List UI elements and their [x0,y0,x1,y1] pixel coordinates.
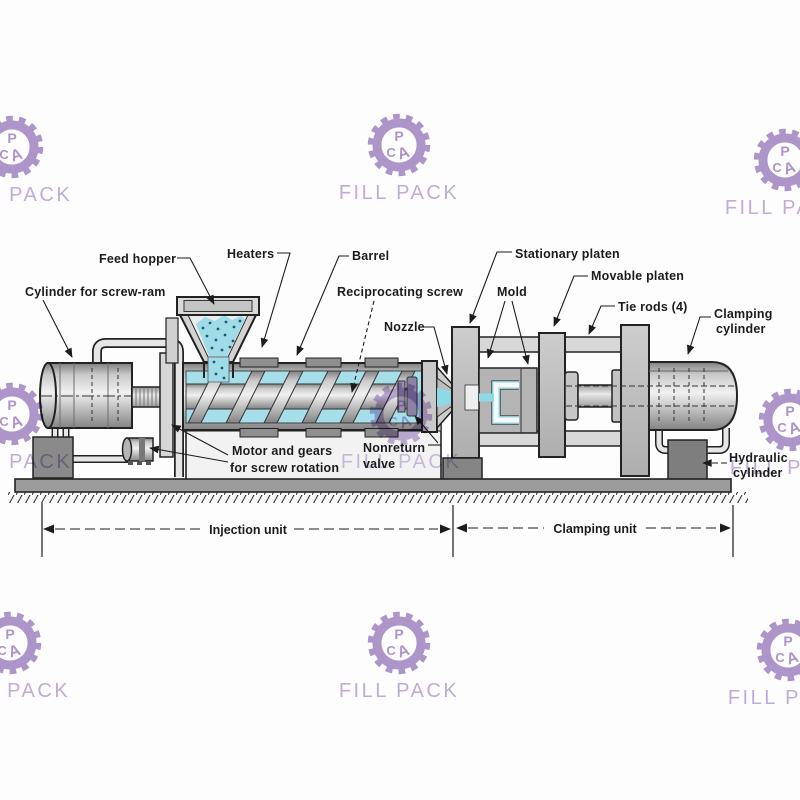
injection-molding-diagram-page: P C A FILL PACK [0,0,800,800]
label-clamping-cylinder-line2: cylinder [716,322,766,336]
label-feed-hopper: Feed hopper [99,252,176,266]
injection-molding-machine-figure: P C A FILL PACK [0,0,800,800]
watermark-middle-right [730,392,800,479]
clamping-piston-rod [565,370,623,422]
label-nozzle: Nozzle [384,320,425,334]
label-heaters: Heaters [227,247,274,261]
label-barrel: Barrel [352,249,389,263]
label-mold: Mold [497,285,527,299]
watermark-top-center [339,117,459,204]
label-motor-gears-line1: Motor and gears [232,444,332,458]
label-reciprocating-screw: Reciprocating screw [337,285,463,299]
label-motor-gears-line2: for screw rotation [230,461,339,475]
ground-hatching [8,492,748,503]
screw-motor [123,438,154,465]
machine-base [8,479,748,503]
label-movable-platen: Movable platen [591,269,684,283]
watermark-bottom-right [728,622,800,709]
label-clamping-cylinder-line1: Clamping [714,307,773,321]
mold [479,368,537,433]
hydraulic-cylinder [668,440,707,480]
movable-platen [539,333,565,457]
dimension-injection-unit: Injection unit [209,523,288,537]
screw-ram-cylinder [40,363,140,428]
watermark-top-left [0,119,72,206]
watermark-top-right [725,132,800,219]
dimension-clamping-unit: Clamping unit [553,522,637,536]
label-stationary-platen: Stationary platen [515,247,620,261]
label-tie-rods: Tie rods (4) [618,300,688,314]
watermark-bottom-left [0,615,70,702]
watermark-bottom-center [339,615,459,702]
clamping-cylinder [649,362,737,430]
cylinder-mount-block [621,325,649,476]
label-cylinder-for-screw-ram: Cylinder for screw-ram [25,285,166,299]
mold-sprue [479,394,494,402]
